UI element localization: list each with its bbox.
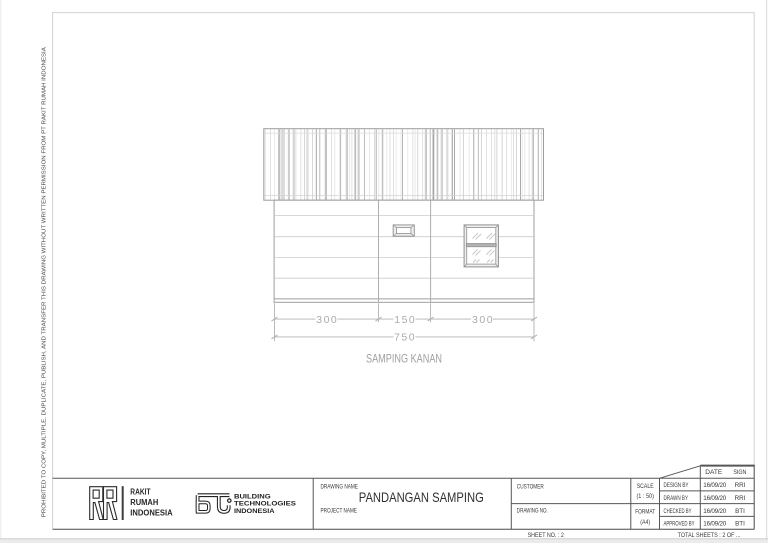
svg-text:RAKIT: RAKIT — [130, 488, 150, 497]
svg-text:RUMAH: RUMAH — [130, 498, 158, 507]
svg-text:RRI: RRI — [735, 482, 746, 489]
svg-text:16/09/20: 16/09/20 — [703, 495, 726, 502]
svg-text:INDONESIA: INDONESIA — [234, 508, 275, 515]
svg-text:PANDANGAN SAMPING: PANDANGAN SAMPING — [359, 489, 484, 505]
svg-text:DRAWING NAME: DRAWING NAME — [321, 483, 358, 490]
svg-text:TECHNOLOGIES: TECHNOLOGIES — [234, 501, 297, 508]
svg-text:300: 300 — [472, 314, 493, 326]
svg-text:SAMPING KANAN: SAMPING KANAN — [366, 351, 442, 365]
svg-text:APPROVED BY: APPROVED BY — [664, 521, 696, 528]
svg-text:DESIGN BY: DESIGN BY — [664, 482, 690, 489]
svg-text:SIGN: SIGN — [733, 469, 746, 476]
svg-text:DATE: DATE — [705, 469, 722, 476]
svg-text:300: 300 — [316, 314, 337, 326]
svg-text:RRI: RRI — [735, 495, 746, 502]
svg-text:SCALE: SCALE — [637, 483, 654, 490]
svg-text:(A4): (A4) — [640, 519, 650, 526]
svg-text:TOTAL SHEETS : 2 OF ...: TOTAL SHEETS : 2 OF ... — [678, 532, 741, 539]
svg-text:PROHIBITED TO COPY, MULTIPLE,: PROHIBITED TO COPY, MULTIPLE, DUPLICATE,… — [42, 47, 48, 517]
svg-text:16/09/20: 16/09/20 — [703, 521, 726, 528]
svg-text:BTI: BTI — [735, 521, 745, 528]
svg-text:16/09/20: 16/09/20 — [703, 508, 726, 515]
svg-text:DRAWING NO.: DRAWING NO. — [517, 508, 548, 515]
svg-text:BUILDING: BUILDING — [234, 493, 271, 500]
svg-text:INDONESIA: INDONESIA — [130, 508, 173, 517]
svg-text:PROJECT NAME: PROJECT NAME — [321, 508, 358, 515]
svg-text:DRAWN BY: DRAWN BY — [664, 495, 689, 502]
svg-text:CUSTOMER: CUSTOMER — [517, 483, 544, 490]
svg-text:150: 150 — [394, 314, 415, 326]
svg-text:750: 750 — [394, 332, 415, 344]
svg-text:FORMAT: FORMAT — [635, 509, 655, 516]
svg-text:SHEET NO. : 2: SHEET NO. : 2 — [528, 532, 565, 539]
svg-text:CHECKED BY: CHECKED BY — [664, 508, 693, 515]
svg-text:(1 : 50): (1 : 50) — [636, 493, 654, 500]
svg-text:BTI: BTI — [735, 508, 745, 515]
svg-text:16/09/20: 16/09/20 — [703, 482, 726, 489]
